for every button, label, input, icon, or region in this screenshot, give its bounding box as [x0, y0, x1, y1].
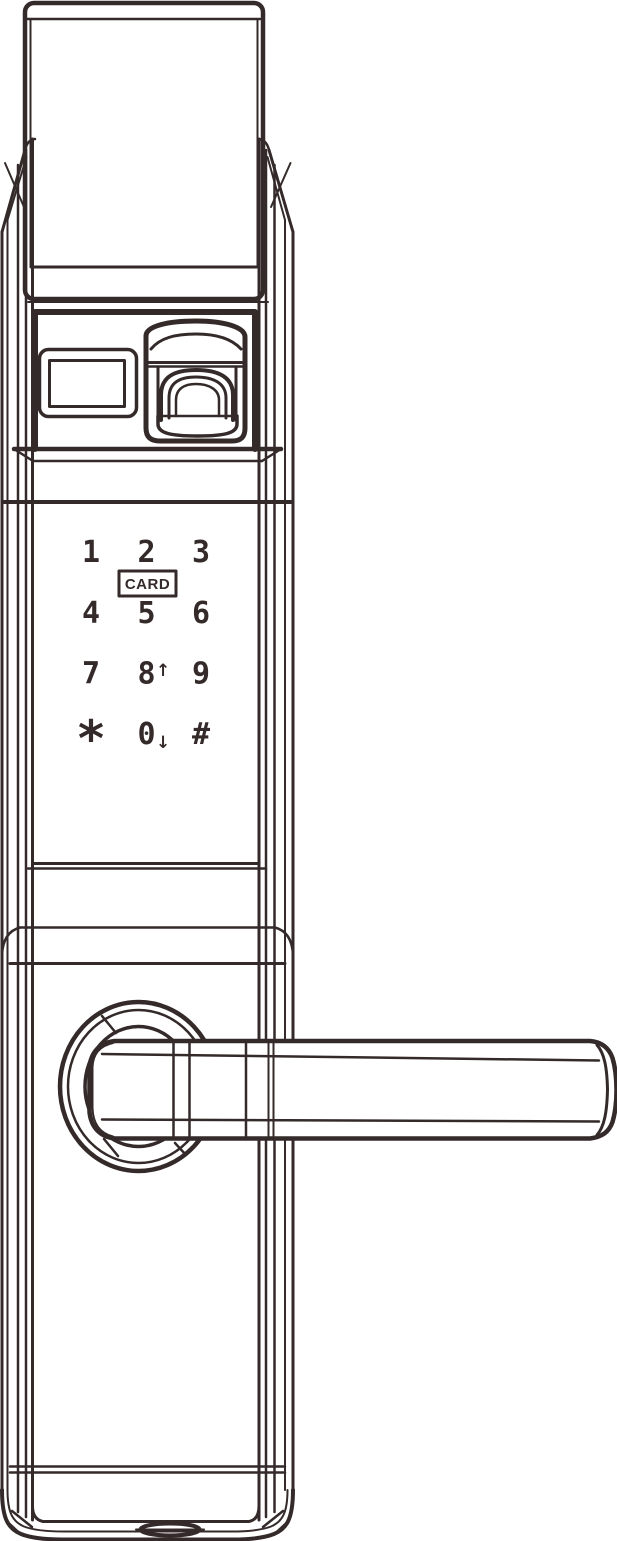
key-5[interactable]: 5 [137, 596, 155, 631]
key-9[interactable]: 9 [192, 657, 210, 692]
card-reader-zone[interactable]: CARD [119, 571, 176, 596]
lock-drawing: 1 2 3 CARD 4 5 6 7 8 ↑ 9 * 0 ↓ # [0, 0, 617, 1541]
fingerprint-cover-arc [151, 334, 241, 349]
card-label: CARD [125, 576, 170, 593]
handle-lever[interactable] [90, 1041, 617, 1139]
key-hash[interactable]: # [192, 717, 210, 752]
handle[interactable] [60, 1002, 617, 1171]
top-cap [25, 3, 268, 302]
fingerprint-panel [14, 312, 281, 461]
key-1[interactable]: 1 [82, 535, 100, 570]
display-window [40, 350, 137, 417]
key-3[interactable]: 3 [192, 535, 210, 570]
key-7[interactable]: 7 [82, 657, 100, 692]
key-4[interactable]: 4 [82, 596, 100, 631]
fingerprint-sensor-icon [158, 370, 237, 436]
down-arrow-icon: ↓ [156, 733, 170, 753]
up-arrow-icon: ↑ [156, 661, 170, 681]
key-6[interactable]: 6 [192, 596, 210, 631]
key-2[interactable]: 2 [137, 535, 155, 570]
fingerprint-reader[interactable] [146, 321, 245, 441]
top-cap-outline [25, 3, 263, 299]
key-0[interactable]: 0 [137, 717, 155, 752]
keypad: 1 2 3 CARD 4 5 6 7 8 ↑ 9 * 0 ↓ # [76, 535, 210, 768]
keyhole-slot[interactable] [136, 1524, 204, 1536]
key-8[interactable]: 8 [137, 657, 155, 692]
smart-lock-diagram: 1 2 3 CARD 4 5 6 7 8 ↑ 9 * 0 ↓ # [0, 0, 617, 1541]
key-star[interactable]: * [76, 710, 106, 768]
